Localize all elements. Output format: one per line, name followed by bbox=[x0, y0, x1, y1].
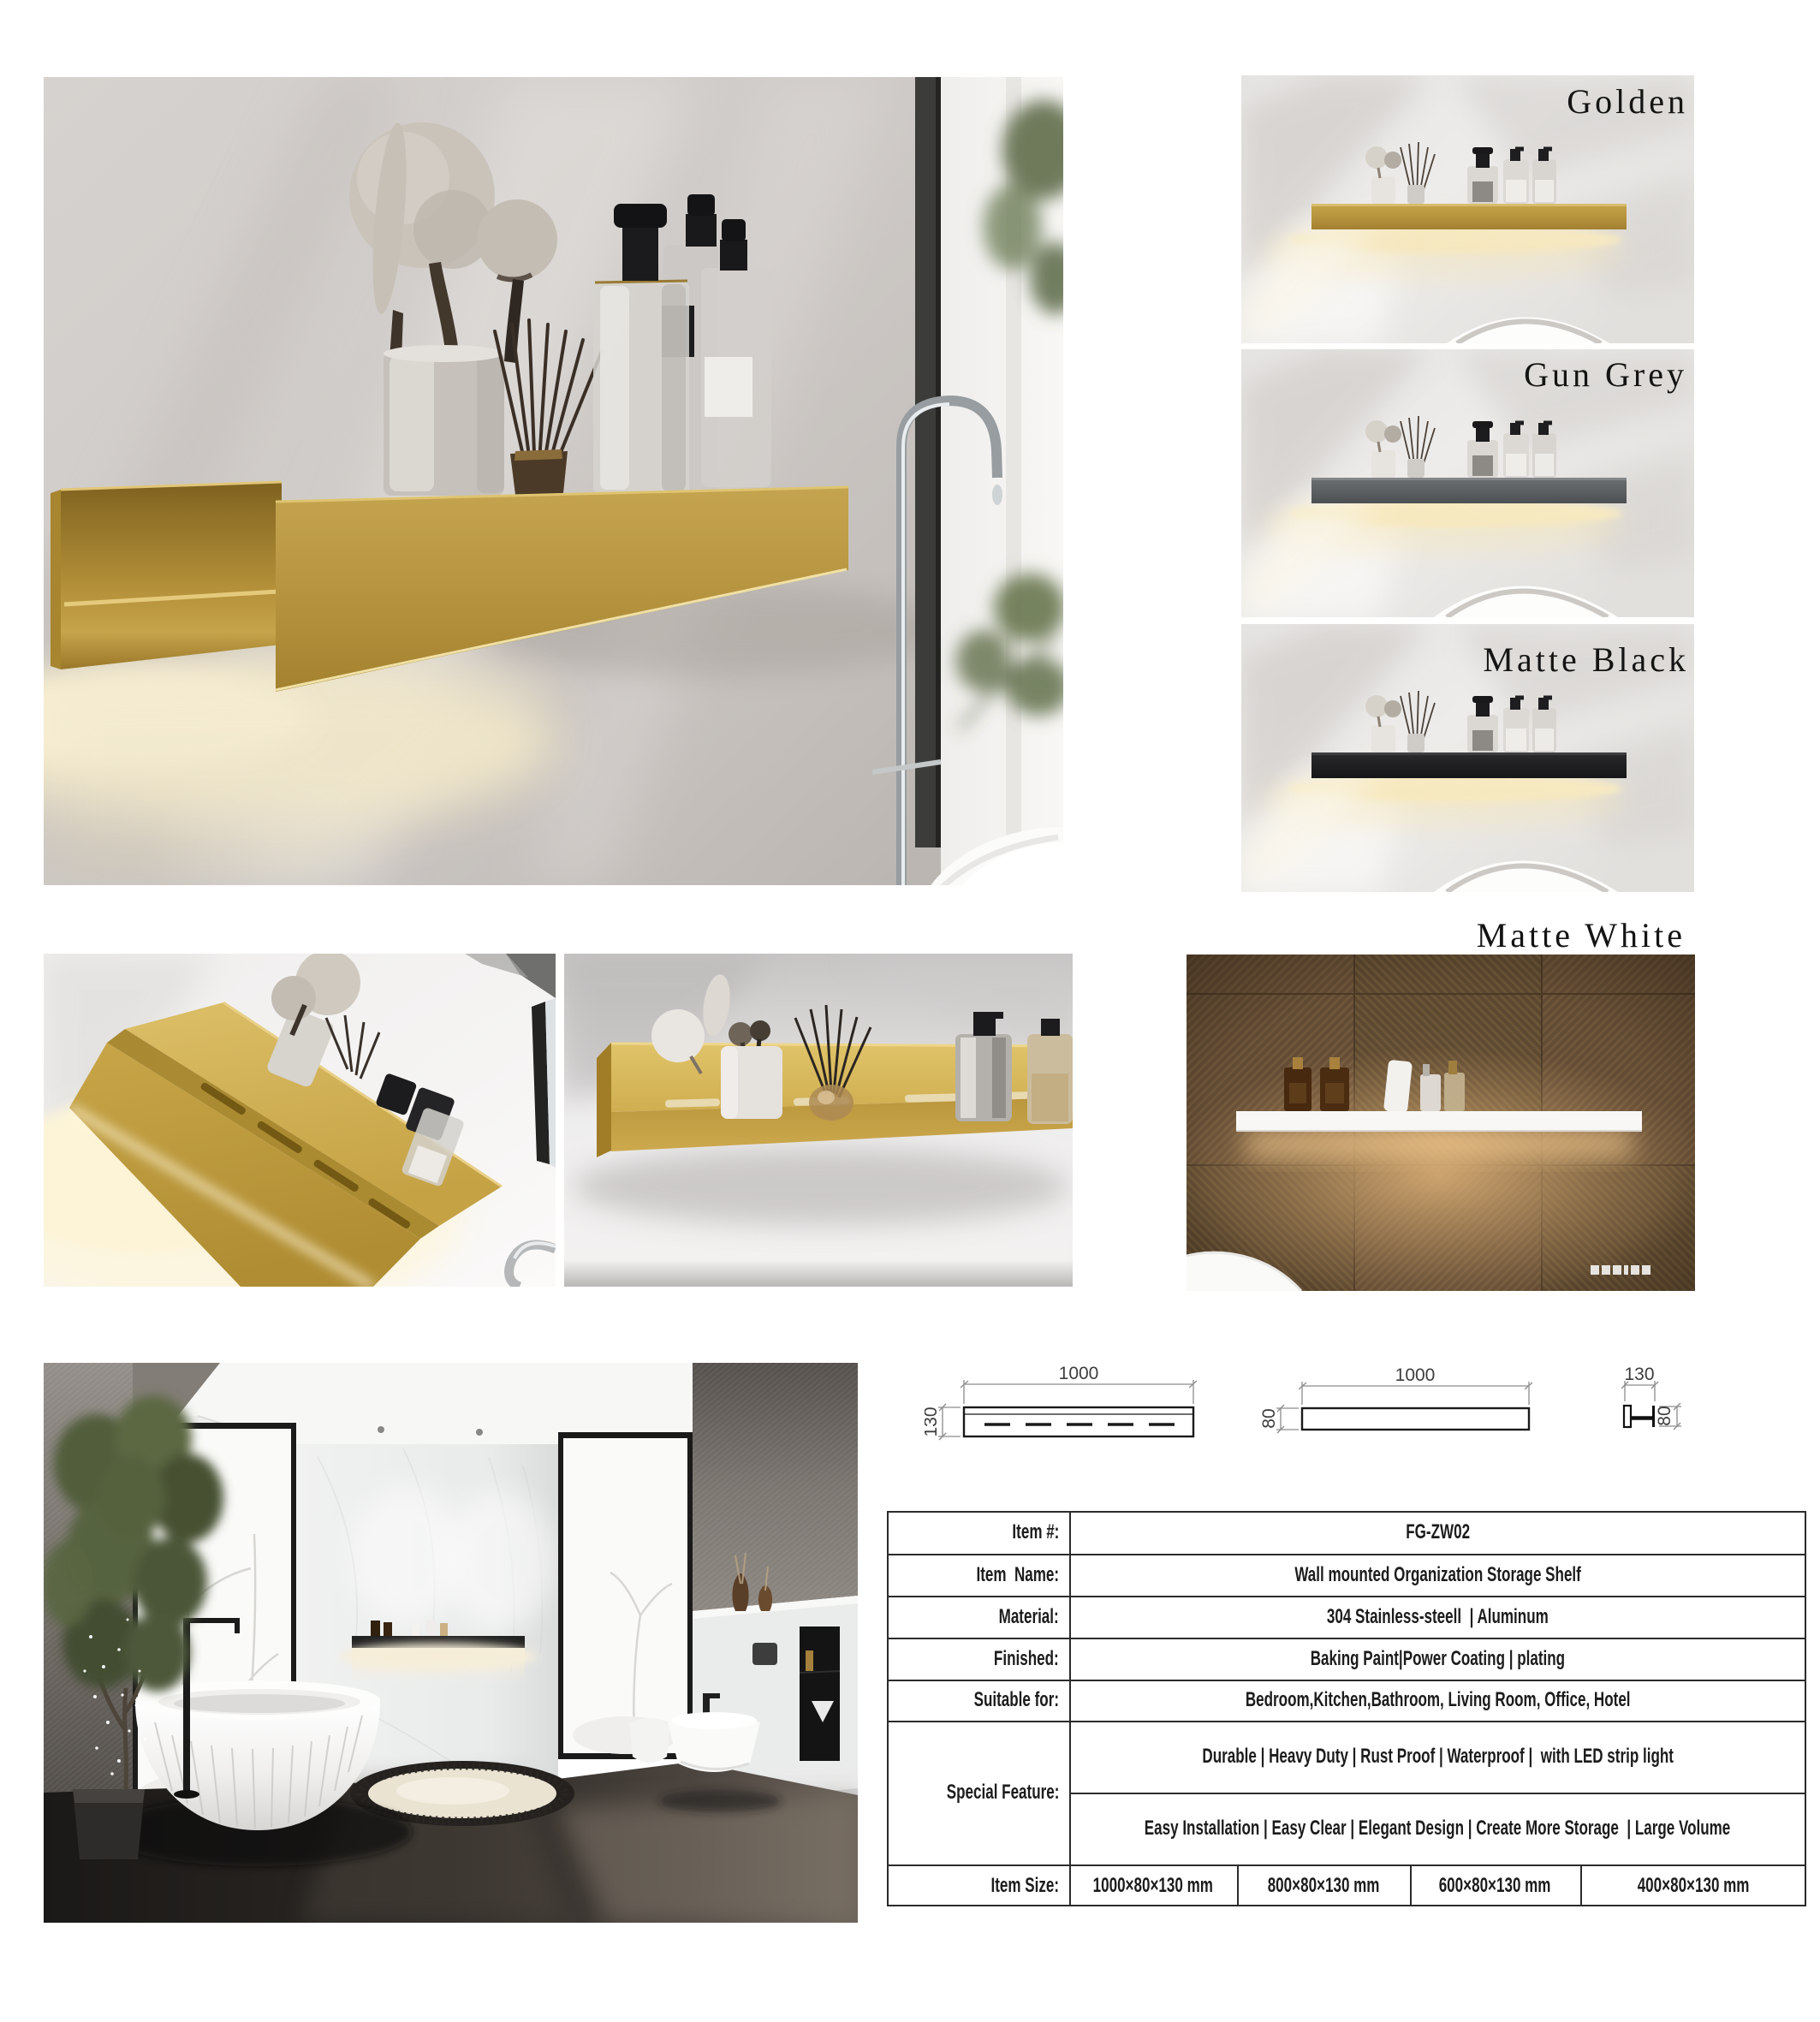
svg-text:80: 80 bbox=[1259, 1408, 1279, 1428]
svg-text:80: 80 bbox=[1655, 1406, 1674, 1425]
svg-text:130: 130 bbox=[925, 1406, 941, 1436]
svg-text:1000: 1000 bbox=[1059, 1365, 1099, 1383]
svg-text:130: 130 bbox=[1624, 1365, 1654, 1384]
svg-text:1000: 1000 bbox=[1395, 1365, 1436, 1385]
